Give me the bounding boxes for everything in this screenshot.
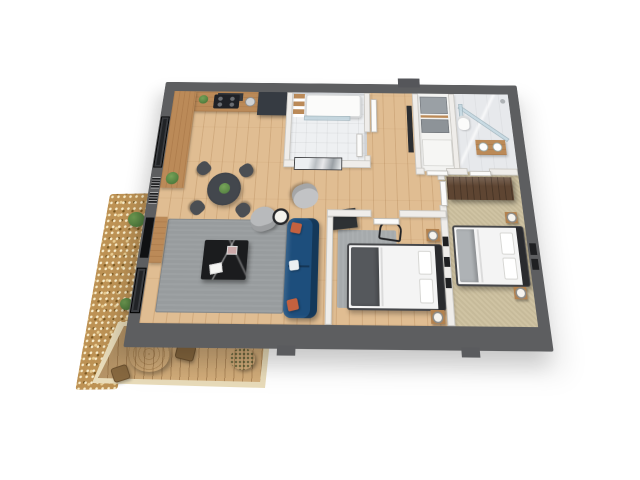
- kitchen-tall-cabinets: [257, 92, 287, 115]
- bed-pillow: [499, 232, 515, 254]
- wall: [489, 168, 519, 175]
- bedroom-1-door: [373, 218, 399, 225]
- coffee-table-book: [209, 262, 223, 274]
- wall: [399, 210, 447, 218]
- wall-frame: [148, 192, 158, 204]
- wall: [415, 168, 424, 175]
- nightstand: [430, 310, 445, 324]
- bedroom-1-bed: [347, 243, 447, 311]
- nightstand: [505, 212, 518, 223]
- storage-boxes: [421, 119, 450, 133]
- vanity-sink: [479, 143, 488, 151]
- bathroom-1-door: [356, 134, 362, 157]
- table-plant: [219, 183, 231, 194]
- wall-pier: [277, 345, 296, 355]
- cooktop: [213, 95, 240, 109]
- wall-frame: [151, 177, 161, 189]
- tub-glass-screen: [305, 116, 350, 120]
- entry-door: [371, 99, 378, 132]
- toilet: [457, 116, 470, 130]
- dining-chair: [237, 162, 255, 180]
- wing-armchair: [289, 180, 321, 211]
- white-pillow: [289, 260, 300, 271]
- bedroom-2-wall-frame: [531, 259, 539, 270]
- duvet-fold: [477, 229, 484, 282]
- bush: [230, 348, 255, 370]
- table-lamp: [507, 214, 515, 221]
- nightstand: [513, 287, 527, 300]
- bathtub: [305, 94, 362, 118]
- dining-chair: [187, 198, 207, 217]
- table-lamp: [434, 313, 443, 322]
- storage-boxes: [420, 97, 448, 114]
- walnut-wardrobe: [447, 177, 515, 201]
- apartment: [145, 56, 534, 350]
- bed-pillow: [502, 257, 518, 280]
- wall: [325, 217, 334, 325]
- dining-chair: [194, 159, 213, 177]
- wall: [446, 168, 468, 175]
- wall: [327, 209, 372, 217]
- bed-throw-blanket: [456, 229, 478, 282]
- nightstand: [426, 229, 440, 242]
- bathroom-2-door: [469, 171, 491, 176]
- chimney: [398, 78, 420, 87]
- storage-shelf: [421, 115, 449, 118]
- utility-cabinet: [422, 139, 454, 166]
- orange-pillow: [286, 298, 299, 312]
- bedroom-2-wall-frame: [529, 243, 537, 255]
- storage-closet-door: [426, 170, 448, 175]
- wall: [364, 93, 370, 132]
- table-lamp: [516, 289, 525, 297]
- coffee-table-book: [226, 246, 237, 255]
- vanity-sink: [493, 143, 502, 151]
- orange-pillow: [290, 222, 302, 234]
- bed-throw-blanket: [351, 247, 380, 306]
- wood-vanity: [475, 140, 507, 155]
- marble-artwork: [294, 157, 343, 170]
- dining-table: [205, 172, 242, 205]
- towel-shelf: [293, 94, 305, 117]
- floorplan-scene: [0, 0, 640, 480]
- apartment-interior: [139, 91, 538, 327]
- duvet-fold: [380, 247, 383, 306]
- marble-coffee-table: [201, 240, 249, 280]
- bedroom-2-bed: [452, 225, 531, 287]
- table-lamp: [429, 231, 437, 239]
- bed-pillow: [419, 278, 434, 303]
- wall-pier: [461, 347, 480, 357]
- bed-pillow: [418, 251, 433, 275]
- blue-sofa: [283, 218, 320, 318]
- apartment-plan: [123, 82, 553, 352]
- shower-drain: [500, 99, 506, 104]
